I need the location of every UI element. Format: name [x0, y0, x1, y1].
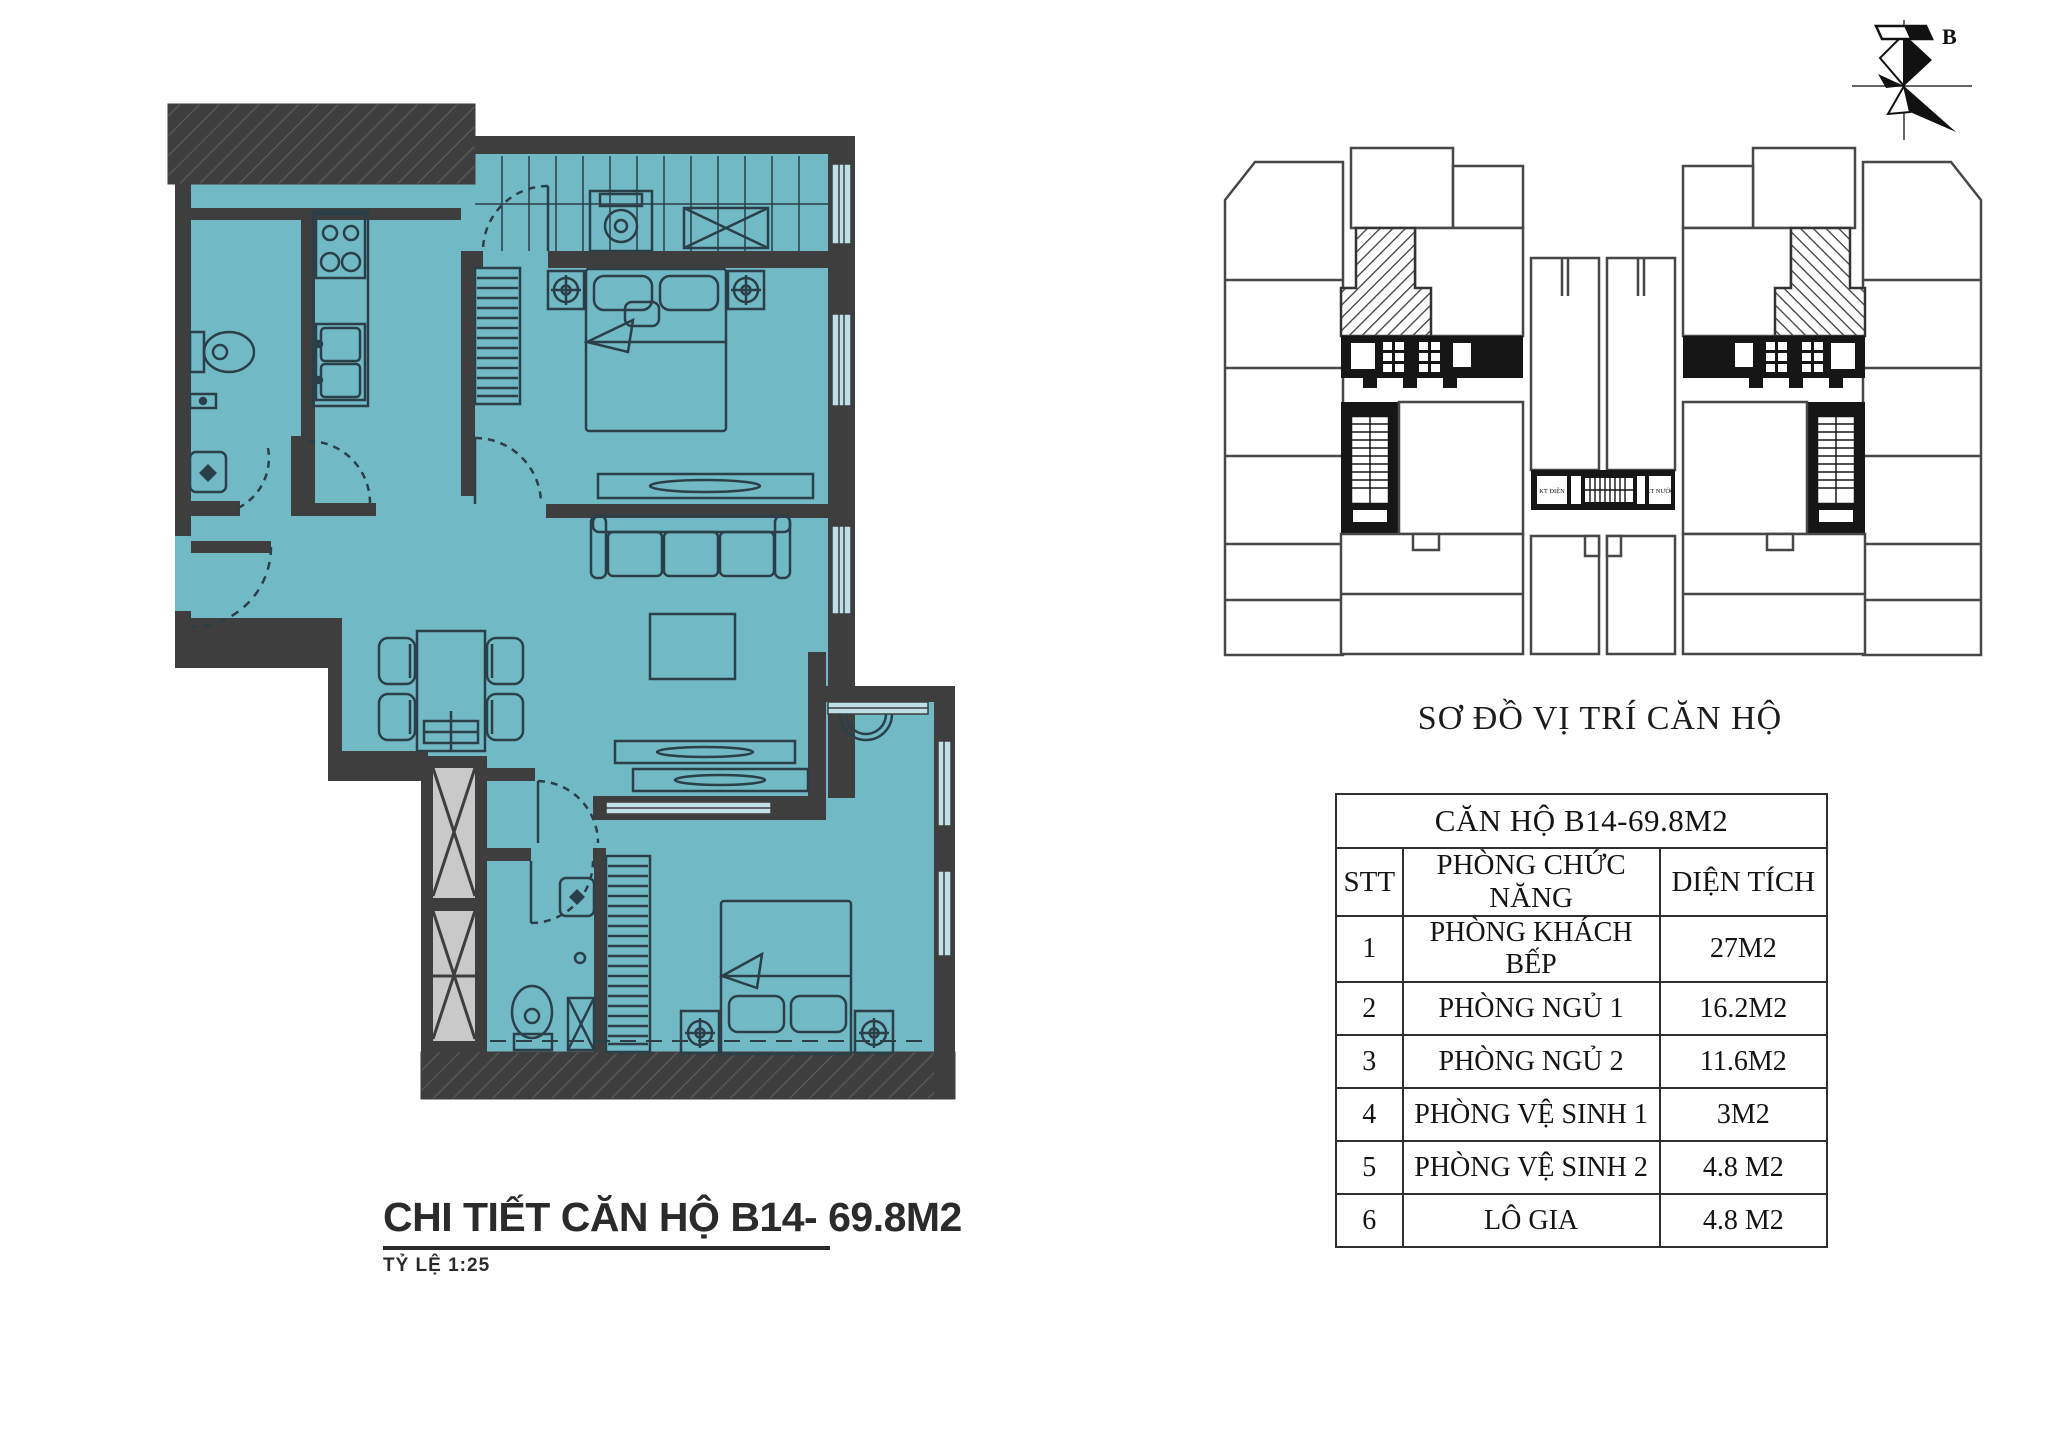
- table-row: 1PHÒNG KHÁCH BẾP27M2: [1336, 916, 1827, 982]
- cell-room: LÔ GIA: [1403, 1194, 1660, 1247]
- area-table-body: 1PHÒNG KHÁCH BẾP27M22PHÒNG NGỦ 116.2M23P…: [1336, 916, 1827, 1247]
- cell-area: 3M2: [1660, 1088, 1827, 1141]
- floor-plan-figure: [128, 96, 1008, 1171]
- plan-title: CHI TIẾT CĂN HỘ B14- 69.8M2: [383, 1196, 853, 1239]
- col-header-room: PHÒNG CHỨC NĂNG: [1403, 848, 1660, 916]
- compass: B: [1850, 12, 1975, 144]
- cell-stt: 5: [1336, 1141, 1403, 1194]
- cell-room: PHÒNG NGỦ 1: [1403, 982, 1660, 1035]
- area-table-wrap: CĂN HỘ B14-69.8M2 STT PHÒNG CHỨC NĂNG DI…: [1335, 793, 1828, 1248]
- table-row: 2PHÒNG NGỦ 116.2M2: [1336, 982, 1827, 1035]
- site-plan-caption: SƠ ĐỒ VỊ TRÍ CĂN HỘ: [1377, 700, 1823, 738]
- central-core: KT ĐIỆN KT NƯỚC: [1531, 470, 1675, 510]
- cell-area: 16.2M2: [1660, 982, 1827, 1035]
- table-row: 3PHÒNG NGỦ 211.6M2: [1336, 1035, 1827, 1088]
- site-plan-left-half: [1225, 148, 1599, 655]
- cell-room: PHÒNG VỆ SINH 2: [1403, 1141, 1660, 1194]
- cell-stt: 1: [1336, 916, 1403, 982]
- cell-room: PHÒNG VỆ SINH 1: [1403, 1088, 1660, 1141]
- cell-stt: 4: [1336, 1088, 1403, 1141]
- north-arrow-icon: B: [1850, 12, 1975, 144]
- north-label: B: [1942, 24, 1957, 49]
- table-row: 6LÔ GIA4.8 M2: [1336, 1194, 1827, 1247]
- col-header-area: DIỆN TÍCH: [1660, 848, 1827, 916]
- plan-scale-label: TỶ LỆ 1:25: [383, 1255, 853, 1277]
- shaft-label-left: KT ĐIỆN: [1539, 487, 1565, 495]
- cell-area: 11.6M2: [1660, 1035, 1827, 1088]
- area-table: CĂN HỘ B14-69.8M2 STT PHÒNG CHỨC NĂNG DI…: [1335, 793, 1828, 1248]
- plan-title-underline: [383, 1246, 830, 1250]
- page-root: { "floor_plan": { "title": "CHI TIẾT CĂN…: [0, 0, 2048, 1448]
- shaft-label-right: KT NƯỚC: [1646, 487, 1675, 495]
- cell-area: 4.8 M2: [1660, 1141, 1827, 1194]
- col-header-stt: STT: [1336, 848, 1403, 916]
- site-plan-right-half: [1607, 148, 1981, 655]
- site-plan-svg: KT ĐIỆN KT NƯỚC: [1213, 140, 1993, 675]
- cell-area: 4.8 M2: [1660, 1194, 1827, 1247]
- cell-area: 27M2: [1660, 916, 1827, 982]
- cell-stt: 3: [1336, 1035, 1403, 1088]
- cell-room: PHÒNG NGỦ 2: [1403, 1035, 1660, 1088]
- site-plan-figure: KT ĐIỆN KT NƯỚC: [1213, 140, 1993, 675]
- plan-title-block: CHI TIẾT CĂN HỘ B14- 69.8M2 TỶ LỆ 1:25: [383, 1196, 853, 1277]
- table-row: 4PHÒNG VỆ SINH 13M2: [1336, 1088, 1827, 1141]
- cell-stt: 2: [1336, 982, 1403, 1035]
- area-table-title: CĂN HỘ B14-69.8M2: [1336, 794, 1827, 848]
- floor-plan-svg: [128, 96, 1008, 1171]
- cell-stt: 6: [1336, 1194, 1403, 1247]
- cell-room: PHÒNG KHÁCH BẾP: [1403, 916, 1660, 982]
- table-row: 5PHÒNG VỆ SINH 24.8 M2: [1336, 1141, 1827, 1194]
